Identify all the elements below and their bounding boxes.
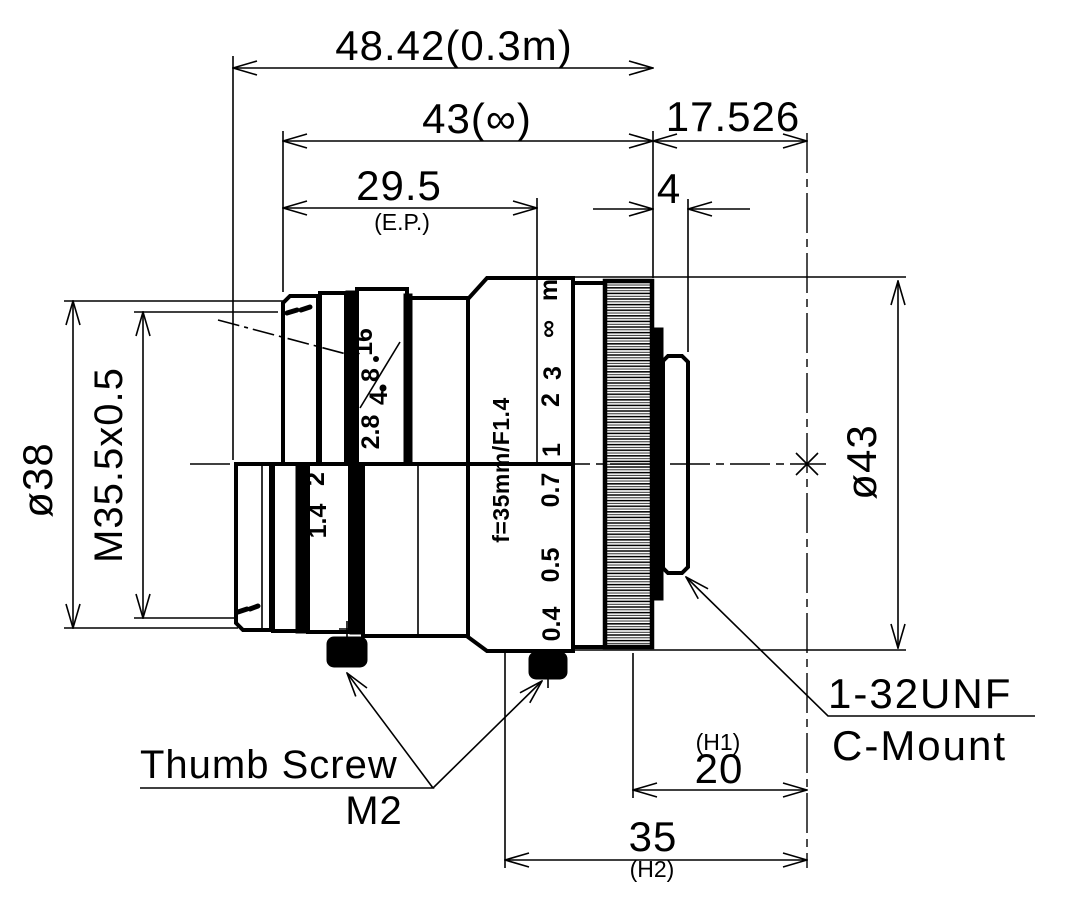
ring2-lower	[273, 464, 299, 631]
label-screw: Thumb Screw	[140, 743, 398, 787]
mid-barrel-upper	[407, 298, 468, 464]
model-marking: f=35mm/F1.4	[488, 397, 514, 543]
mid-barrel-lower	[363, 464, 468, 636]
dim-front-dia-text: ø38	[14, 442, 61, 517]
lens-body	[218, 278, 688, 688]
aperture-1.4: 1.4	[304, 504, 332, 539]
dim-overall-03m-text: 48.42(0.3m)	[335, 22, 572, 69]
aperture-2.8: 2.8	[357, 415, 385, 450]
focus-1: 1	[538, 443, 566, 457]
dim-overall-inf-text: 43(∞)	[422, 95, 532, 142]
ring2-upper	[320, 293, 346, 464]
aperture-4: 4	[365, 391, 393, 405]
focus-0.5: 0.5	[537, 548, 565, 583]
thumb-screw-2	[529, 652, 567, 679]
rear-ring	[573, 283, 605, 647]
dim-ep-note: (E.P.)	[374, 209, 430, 235]
focus-unit-m: m	[535, 279, 563, 301]
dim-flange-width-text: 4	[657, 165, 681, 212]
aperture-16: 16	[350, 328, 378, 356]
focus-0.4: 0.4	[538, 607, 566, 642]
dim-filter-thread-text: M35.5x0.5	[87, 367, 131, 563]
focus-infinity: ∞	[534, 320, 562, 338]
drawing-canvas: 48.42(0.3m) 43(∞) 17.526 29.5 (E.P.) 4 ø…	[0, 0, 1068, 910]
aperture-dot-11	[373, 356, 379, 362]
aperture-dot-5.6	[380, 385, 387, 392]
focus-3: 3	[539, 366, 567, 380]
dim-h2-text: 35	[629, 813, 678, 860]
focus-2: 2	[537, 393, 565, 407]
focus-0.7: 0.7	[537, 473, 565, 508]
dim-ep-text: 29.5	[356, 162, 442, 209]
label-mount-type: C-Mount	[832, 722, 1007, 769]
dim-h2-note: (H2)	[630, 856, 675, 882]
groove-band2-upper	[404, 294, 412, 464]
dim-h1-text: 20	[695, 745, 744, 792]
label-mount-thread: 1-32UNF	[828, 670, 1012, 717]
aperture-ring-lower	[308, 464, 350, 632]
lens-technical-drawing: 48.42(0.3m) 43(∞) 17.526 29.5 (E.P.) 4 ø…	[0, 0, 1068, 910]
thumb-screw-1	[327, 637, 367, 667]
front-ring-upper	[283, 296, 318, 464]
label-screw-size: M2	[345, 789, 403, 833]
dim-body-dia-text: ø43	[838, 424, 885, 499]
dimension-flange-back: 17.526	[653, 93, 807, 141]
dim-flange-back-text: 17.526	[666, 93, 800, 140]
aperture-8: 8	[357, 368, 385, 382]
aperture-2: 2	[302, 472, 330, 486]
